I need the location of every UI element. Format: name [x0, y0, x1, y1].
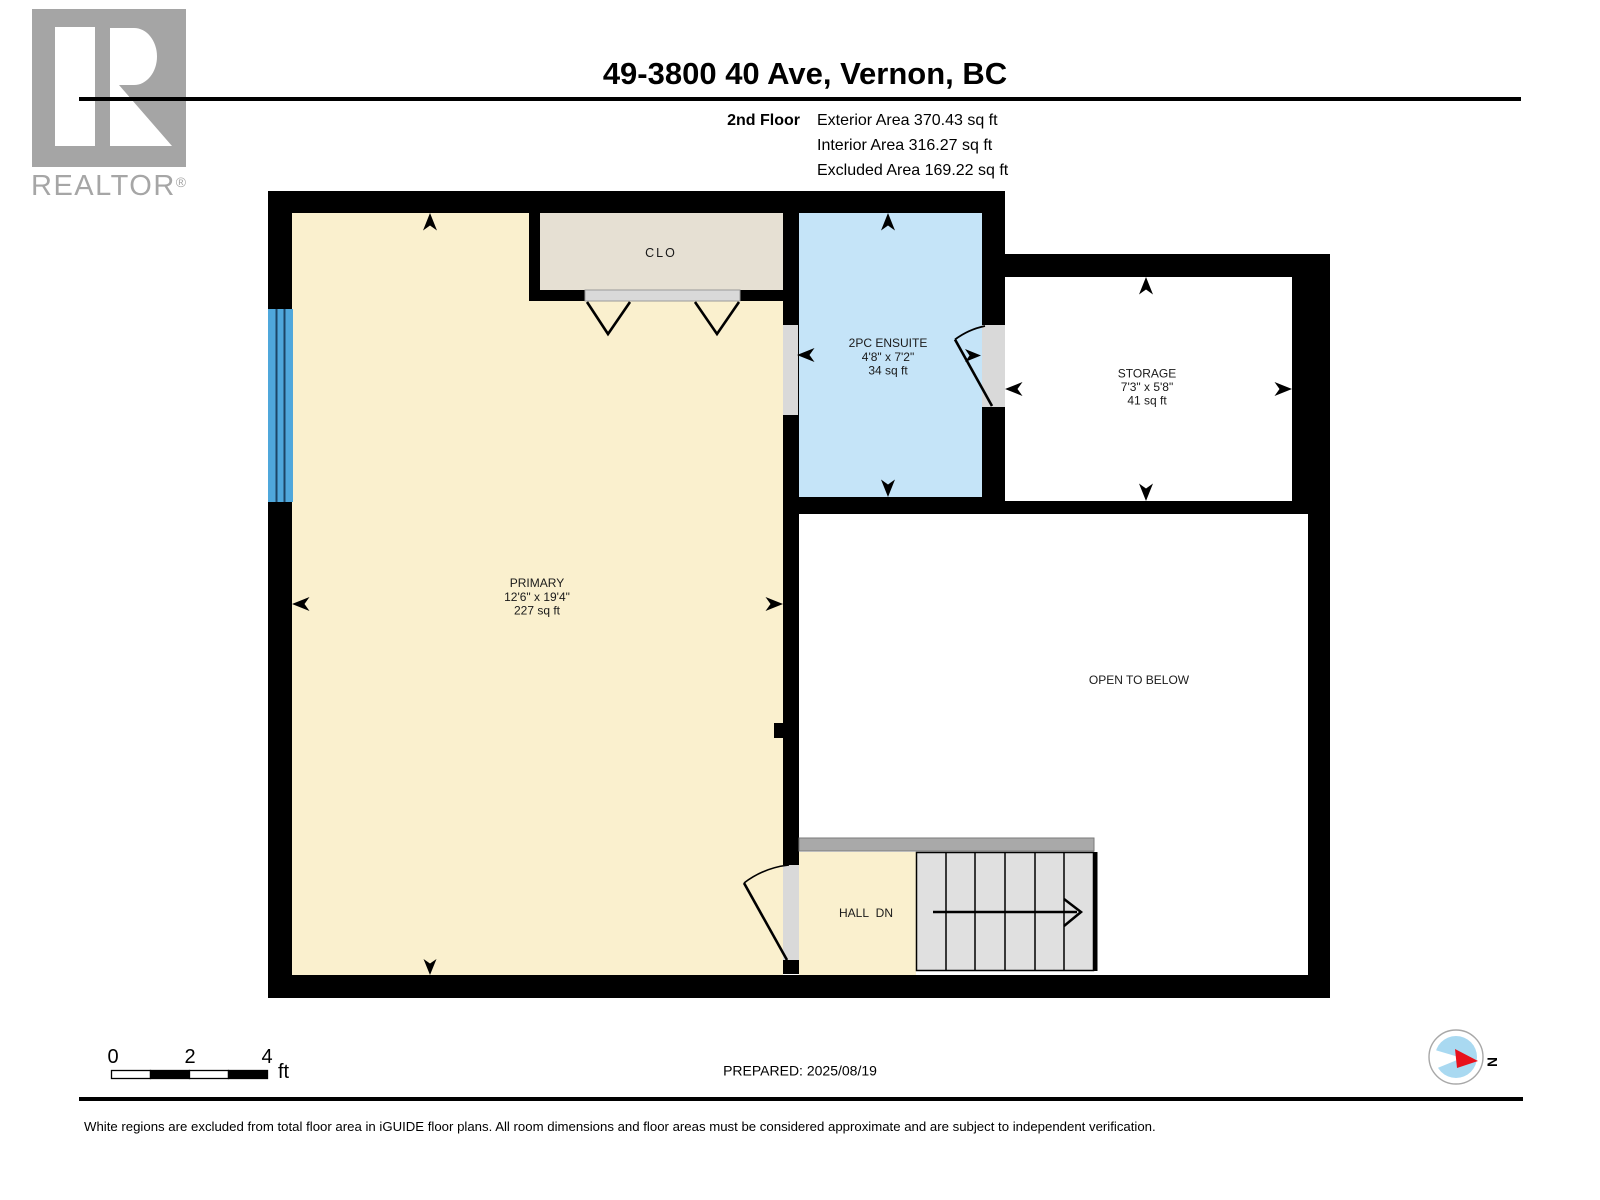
svg-text:STORAGE: STORAGE — [1118, 367, 1176, 381]
svg-text:HALL DN: HALL DN — [839, 906, 893, 920]
svg-text:N: N — [1485, 1057, 1500, 1067]
svg-text:2PC ENSUITE: 2PC ENSUITE — [849, 336, 928, 350]
svg-text:0: 0 — [107, 1046, 118, 1068]
svg-text:41 sq ft: 41 sq ft — [1127, 394, 1167, 408]
svg-text:PREPARED: 2025/08/19: PREPARED: 2025/08/19 — [723, 1063, 877, 1079]
svg-text:OPEN TO BELOW: OPEN TO BELOW — [1089, 673, 1190, 687]
svg-text:PRIMARY: PRIMARY — [510, 576, 564, 590]
svg-text:ft: ft — [278, 1061, 290, 1083]
svg-text:227 sq ft: 227 sq ft — [514, 604, 561, 618]
svg-text:7'3" x 5'8": 7'3" x 5'8" — [1121, 380, 1173, 394]
svg-text:12'6" x 19'4": 12'6" x 19'4" — [504, 590, 570, 604]
svg-text:4: 4 — [261, 1046, 272, 1068]
svg-text:CLO: CLO — [645, 246, 677, 260]
svg-text:White regions are excluded fro: White regions are excluded from total fl… — [84, 1119, 1156, 1134]
svg-text:34 sq ft: 34 sq ft — [868, 364, 908, 378]
svg-text:2: 2 — [184, 1046, 195, 1068]
svg-text:4'8" x 7'2": 4'8" x 7'2" — [862, 350, 914, 364]
